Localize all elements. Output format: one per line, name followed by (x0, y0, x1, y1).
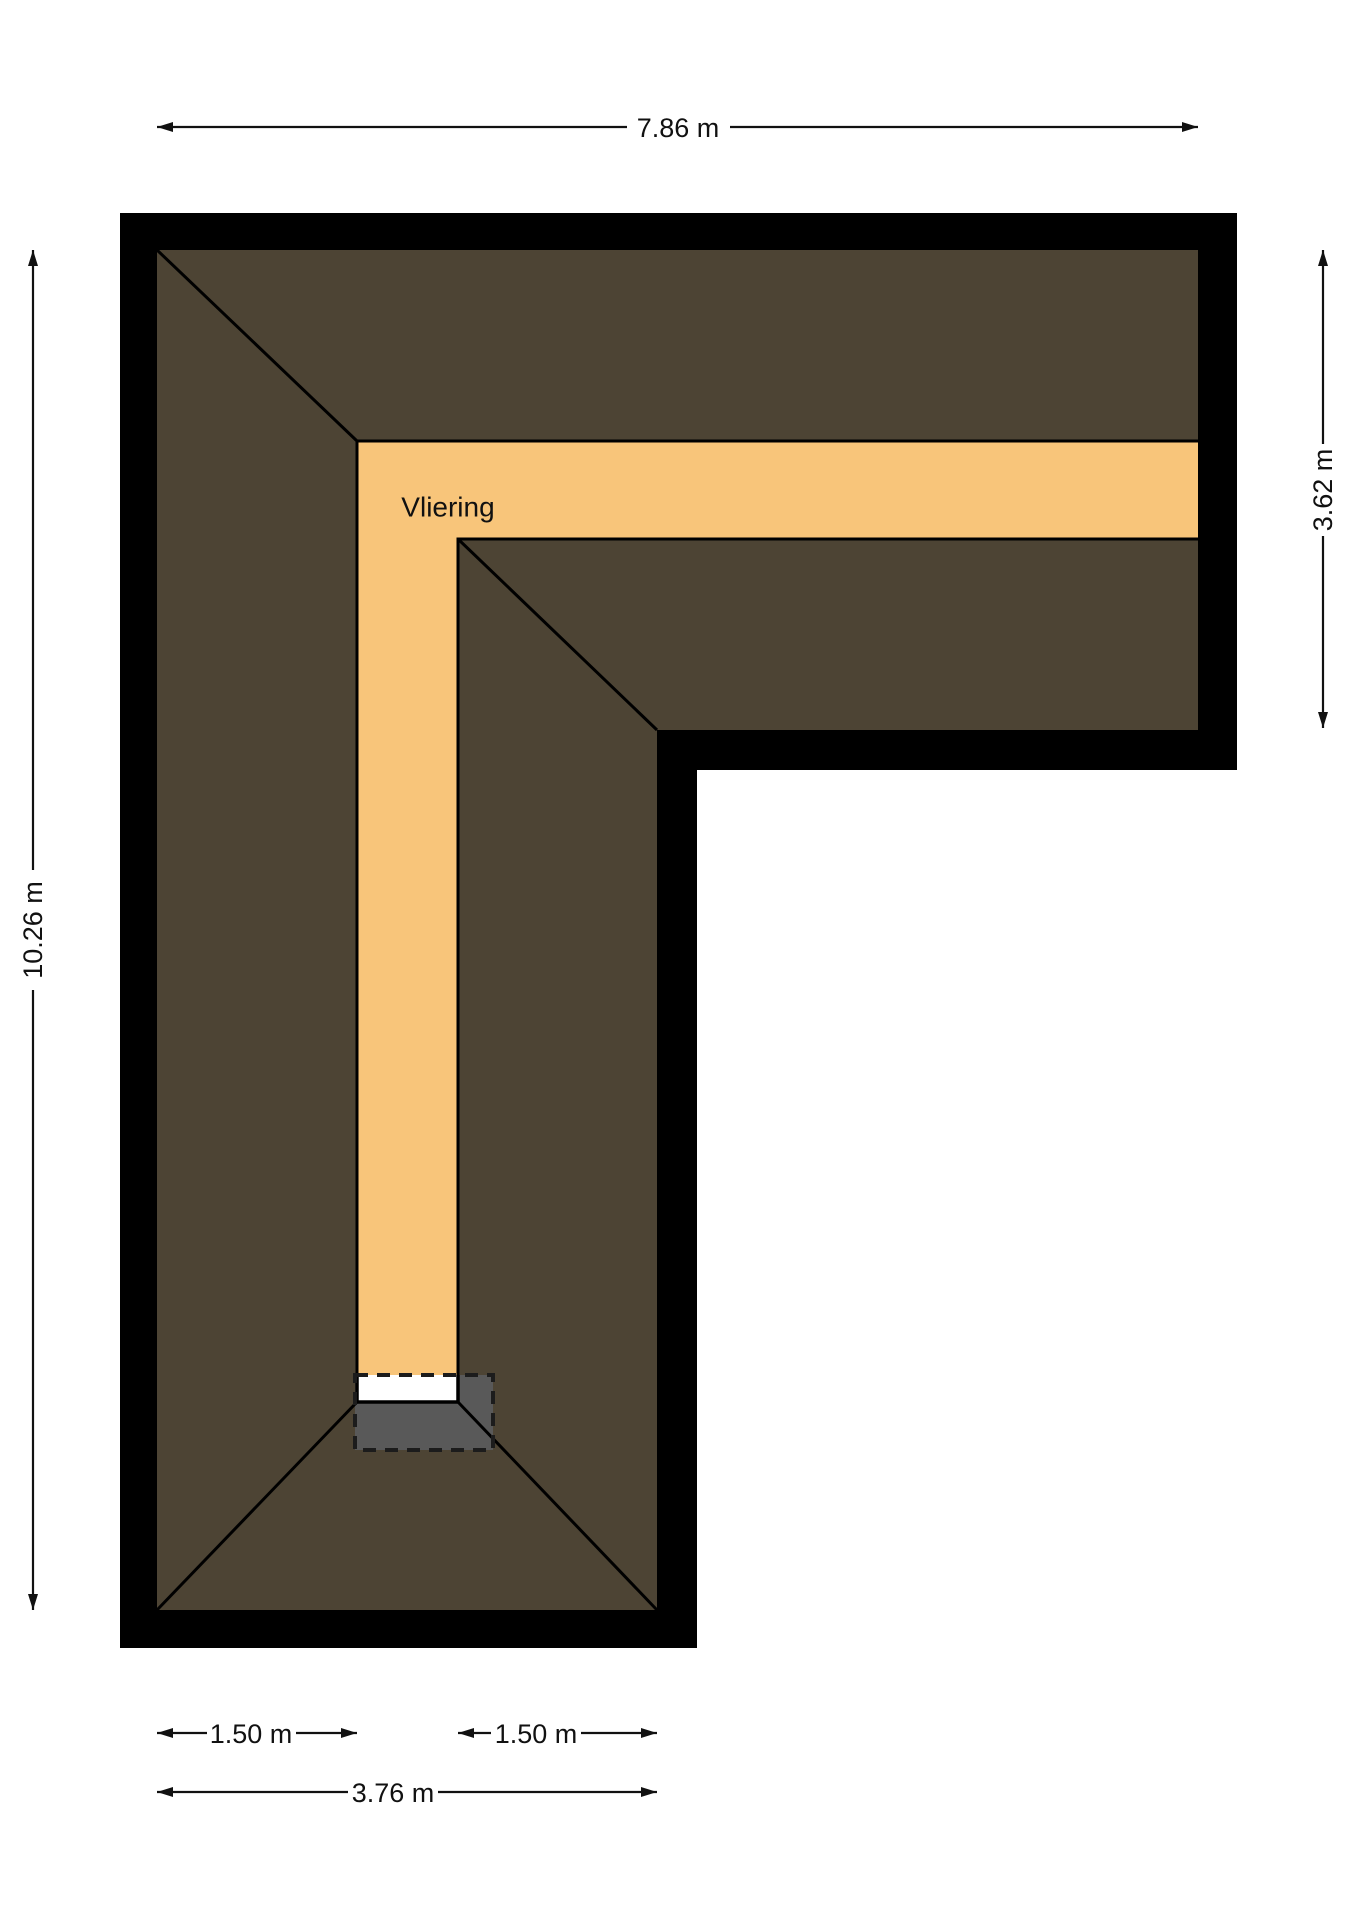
floorplan-page: Vliering 7.86 m 10.26 m 3.62 m 1.50 m (0, 0, 1358, 1920)
dimension-bottom-left-segment: 1.50 m (157, 1719, 357, 1749)
dimension-right-wing-height: 3.62 m (1308, 250, 1338, 728)
dimension-bottom-right-segment-label: 1.50 m (495, 1719, 578, 1749)
room-label: Vliering (401, 492, 494, 523)
dimension-bottom-left-segment-label: 1.50 m (210, 1719, 293, 1749)
floorplan-svg: Vliering 7.86 m 10.26 m 3.62 m 1.50 m (0, 0, 1358, 1920)
dimension-right-wing-height-label: 3.62 m (1308, 449, 1338, 532)
dimension-bottom-total: 3.76 m (157, 1778, 657, 1808)
dimension-left-height-label: 10.26 m (18, 881, 48, 979)
dimension-bottom-total-label: 3.76 m (352, 1778, 435, 1808)
dimension-top-width-label: 7.86 m (637, 113, 720, 143)
dimension-bottom-right-segment: 1.50 m (458, 1719, 657, 1749)
dimension-top-width: 7.86 m (157, 113, 1198, 143)
dimension-left-height: 10.26 m (18, 250, 48, 1610)
stair-landing (357, 1375, 458, 1402)
